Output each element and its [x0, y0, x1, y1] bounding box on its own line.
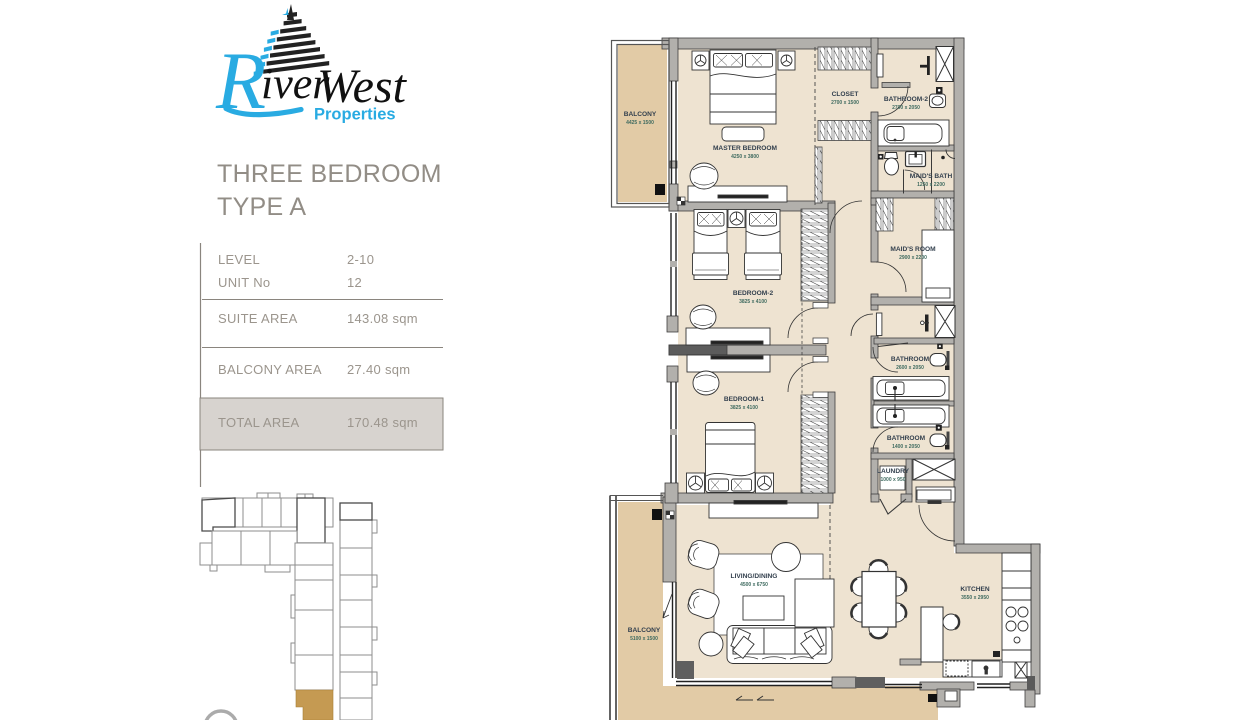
svg-text:2900 x 2200: 2900 x 2200	[899, 255, 927, 261]
svg-text:CLOSET: CLOSET	[832, 91, 859, 98]
svg-text:4250 x 3800: 4250 x 3800	[731, 154, 759, 160]
svg-text:143.08 sqm: 143.08 sqm	[347, 311, 418, 326]
svg-text:MAID'S BATH: MAID'S BATH	[910, 173, 953, 180]
svg-text:3825 x 4100: 3825 x 4100	[739, 299, 767, 305]
svg-text:1400 x 2050: 1400 x 2050	[892, 444, 920, 450]
svg-text:BALCONY AREA: BALCONY AREA	[218, 362, 322, 377]
svg-text:LEVEL: LEVEL	[218, 252, 260, 267]
svg-text:BATHROOM: BATHROOM	[891, 356, 930, 363]
svg-text:TYPE A: TYPE A	[217, 193, 306, 221]
svg-text:1250 x 2200: 1250 x 2200	[917, 182, 945, 188]
svg-text:BATHROOM-2: BATHROOM-2	[884, 96, 929, 103]
svg-text:5100 x 1500: 5100 x 1500	[630, 636, 658, 642]
svg-text:MASTER BEDROOM: MASTER BEDROOM	[713, 145, 778, 152]
svg-text:BATHROOM: BATHROOM	[887, 435, 926, 442]
svg-text:4425 x 1500: 4425 x 1500	[626, 120, 654, 126]
svg-text:3825 x 4100: 3825 x 4100	[730, 405, 758, 411]
svg-text:Properties: Properties	[314, 106, 396, 124]
svg-text:MAID'S ROOM: MAID'S ROOM	[890, 246, 936, 253]
svg-text:27.40 sqm: 27.40 sqm	[347, 362, 410, 377]
svg-text:BALCONY: BALCONY	[628, 627, 661, 634]
svg-text:UNIT No: UNIT No	[218, 275, 270, 290]
svg-text:4500 x 6750: 4500 x 6750	[740, 582, 768, 588]
svg-text:LIVING/DINING: LIVING/DINING	[731, 573, 778, 580]
svg-text:BEDROOM-2: BEDROOM-2	[733, 290, 774, 297]
svg-text:12: 12	[347, 275, 362, 290]
svg-text:2-10: 2-10	[347, 252, 374, 267]
svg-text:2700 x 2050: 2700 x 2050	[892, 105, 920, 111]
svg-text:2600 x 2050: 2600 x 2050	[896, 365, 924, 371]
svg-text:2700 x 1500: 2700 x 1500	[831, 100, 859, 106]
svg-text:SUITE AREA: SUITE AREA	[218, 311, 298, 326]
svg-text:3550 x 2950: 3550 x 2950	[961, 595, 989, 601]
svg-text:BALCONY: BALCONY	[624, 111, 657, 118]
svg-text:KITCHEN: KITCHEN	[960, 586, 990, 593]
svg-text:TOTAL AREA: TOTAL AREA	[218, 415, 300, 430]
svg-text:BEDROOM-1: BEDROOM-1	[724, 396, 765, 403]
svg-text:LAUNDRY: LAUNDRY	[877, 468, 910, 475]
svg-text:THREE BEDROOM: THREE BEDROOM	[217, 160, 442, 188]
svg-text:1000 x 950: 1000 x 950	[880, 477, 905, 483]
svg-text:170.48 sqm: 170.48 sqm	[347, 415, 418, 430]
